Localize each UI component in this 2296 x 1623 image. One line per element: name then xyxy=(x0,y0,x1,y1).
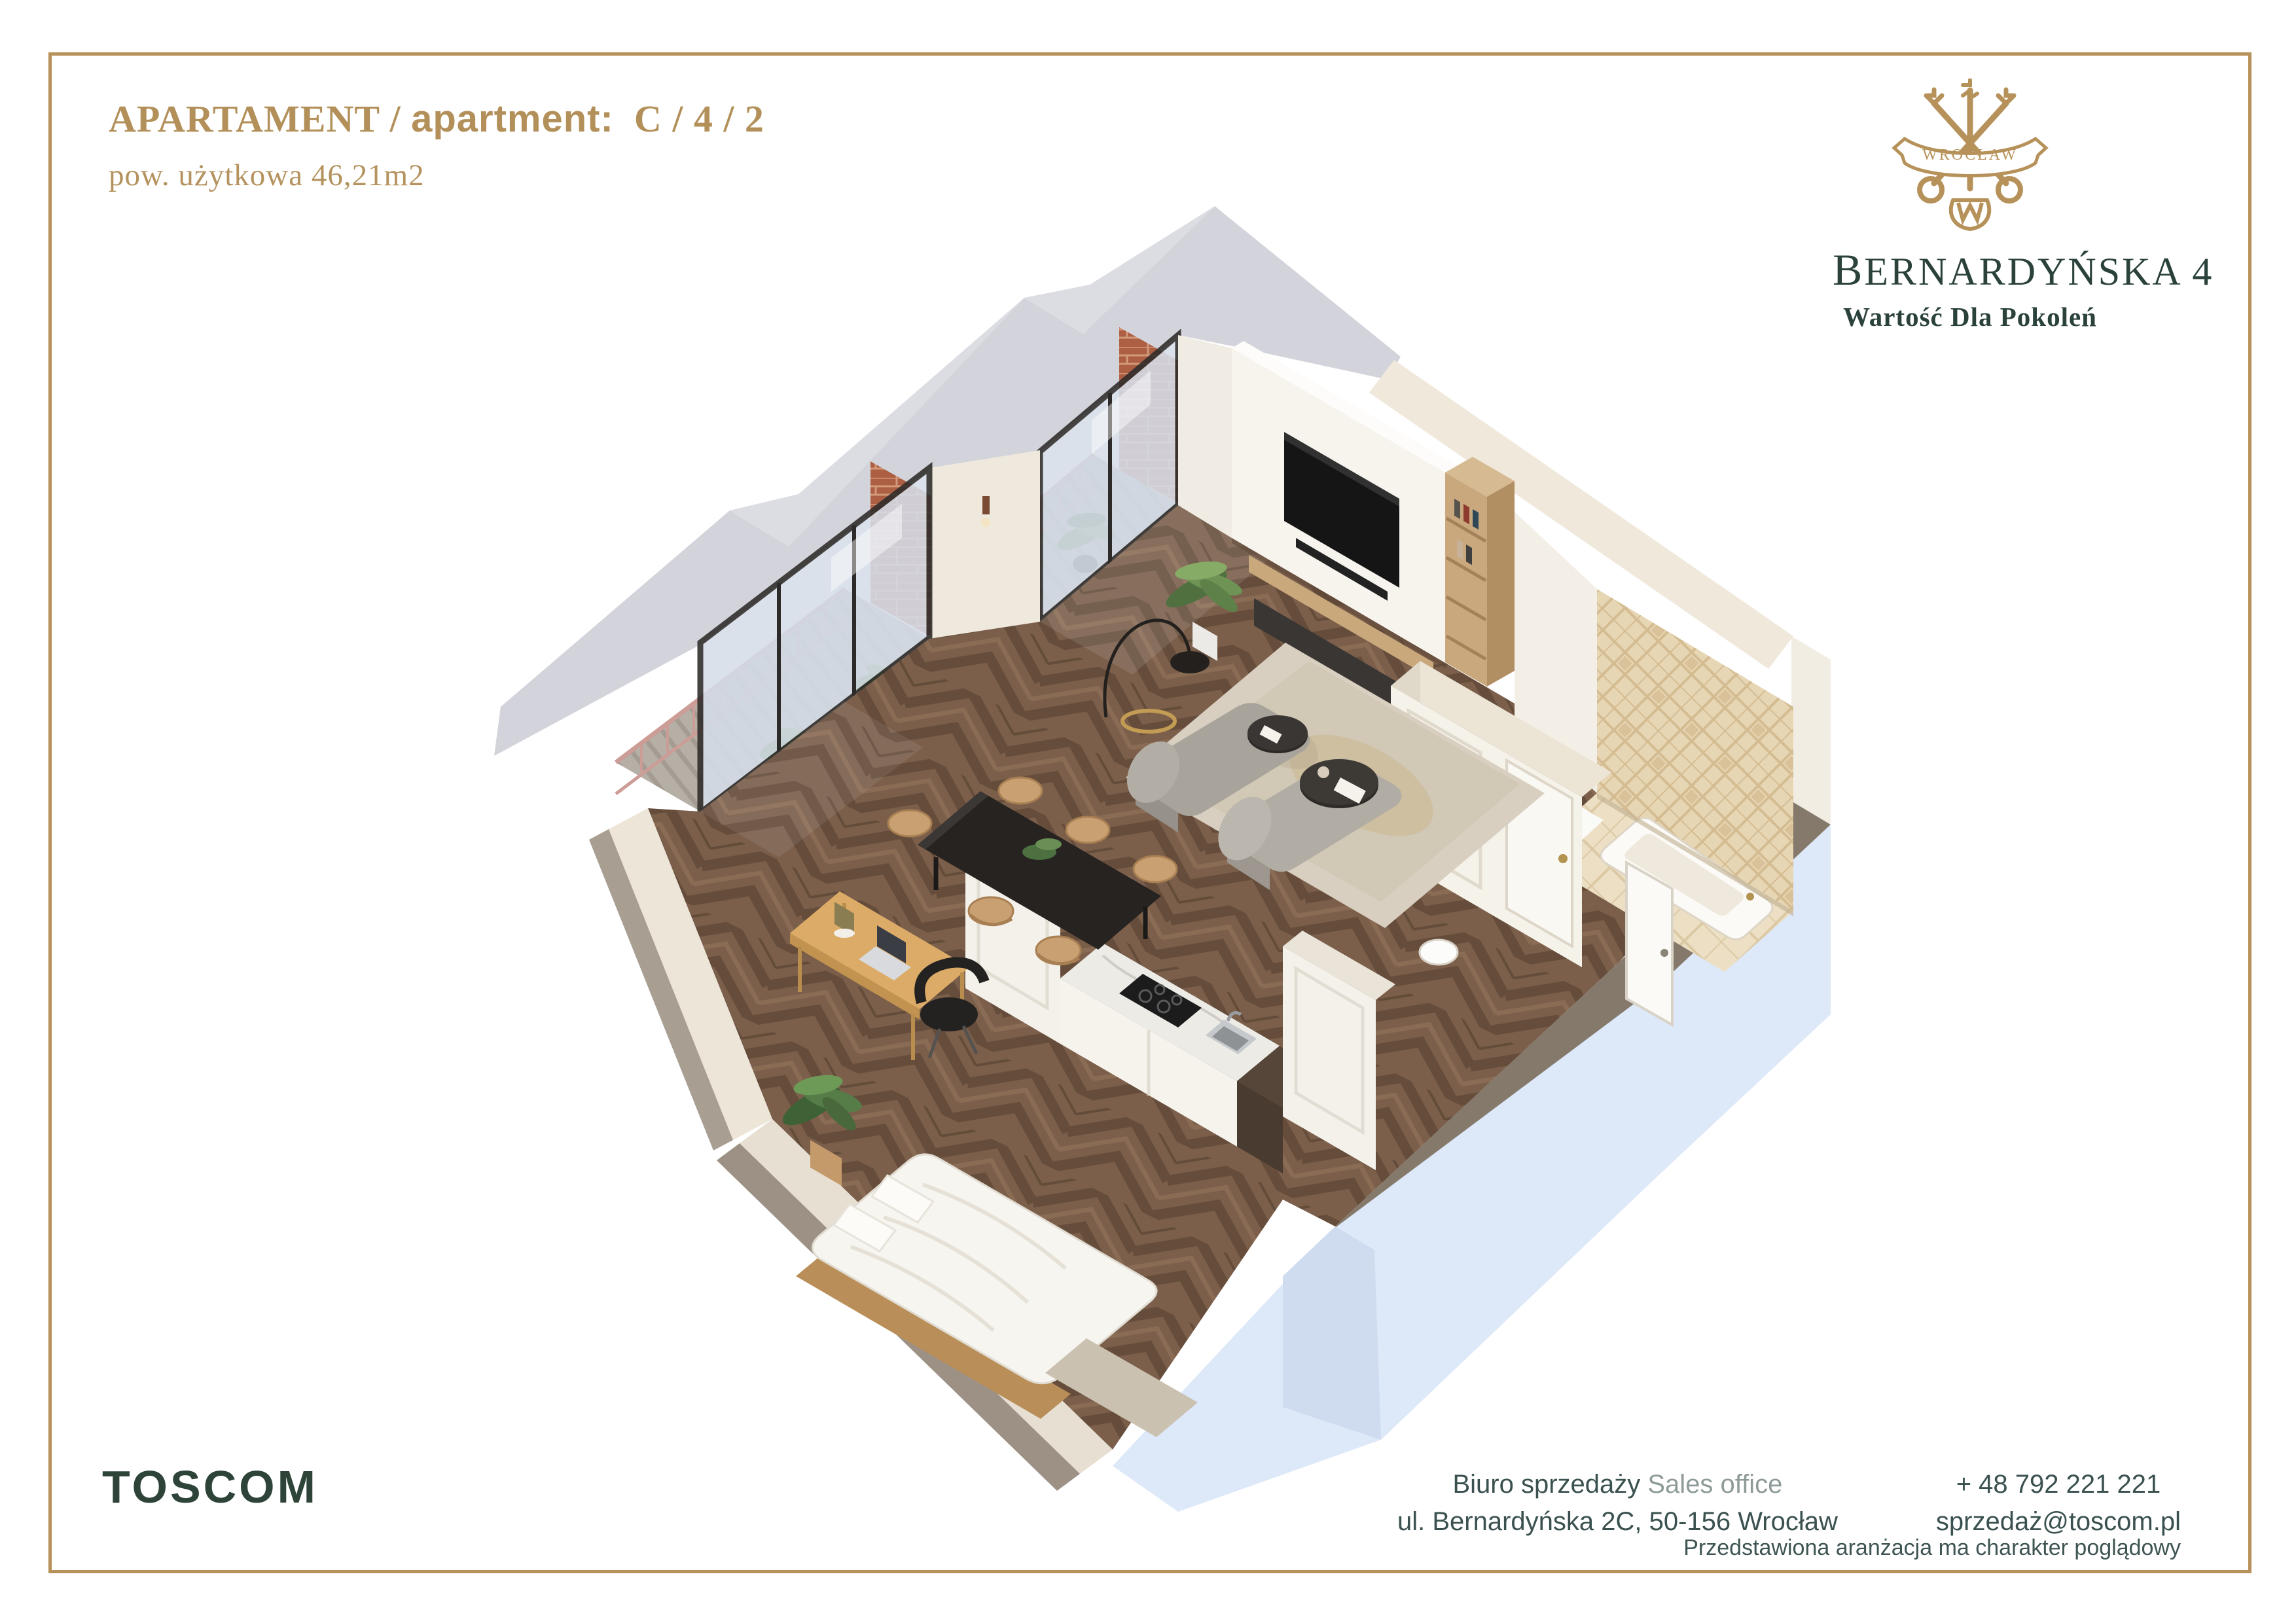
sales-office-info: Biuro sprzedaży Sales office ul. Bernard… xyxy=(1397,1466,1838,1541)
brochure-page: APARTAMENT / apartment: C / 4 / 2 pow. u… xyxy=(0,0,2296,1623)
wall-lamp-icon xyxy=(982,496,990,514)
office-label-pl: Biuro sprzedaży xyxy=(1452,1470,1640,1499)
toilet xyxy=(1420,940,1458,965)
title-separator: / xyxy=(380,98,411,140)
unit-code: C / 4 / 2 xyxy=(634,98,764,140)
apartment-title: APARTAMENT / apartment: C / 4 / 2 xyxy=(109,97,764,141)
disclaimer-text: Przedstawiona aranżacja ma charakter pog… xyxy=(1683,1535,2181,1561)
toscom-logo: TOSCOM xyxy=(102,1461,318,1513)
contact-block: Biuro sprzedaży Sales office ul. Bernard… xyxy=(1397,1466,2181,1541)
apartment-label-pl: APARTAMENT xyxy=(109,98,380,140)
entry-door xyxy=(1626,863,1672,1025)
ribbon-text: WROCŁAW xyxy=(1922,147,2018,164)
office-label-en: Sales office xyxy=(1647,1470,1782,1499)
apartment-label-en: apartment: xyxy=(411,98,614,140)
phone-number: + 48 792 221 221 xyxy=(1936,1466,2181,1503)
bookshelf xyxy=(1445,457,1515,687)
floorplan-render xyxy=(425,164,1996,1558)
contact-details: + 48 792 221 221 sprzedaż@toscom.pl xyxy=(1936,1466,2181,1541)
